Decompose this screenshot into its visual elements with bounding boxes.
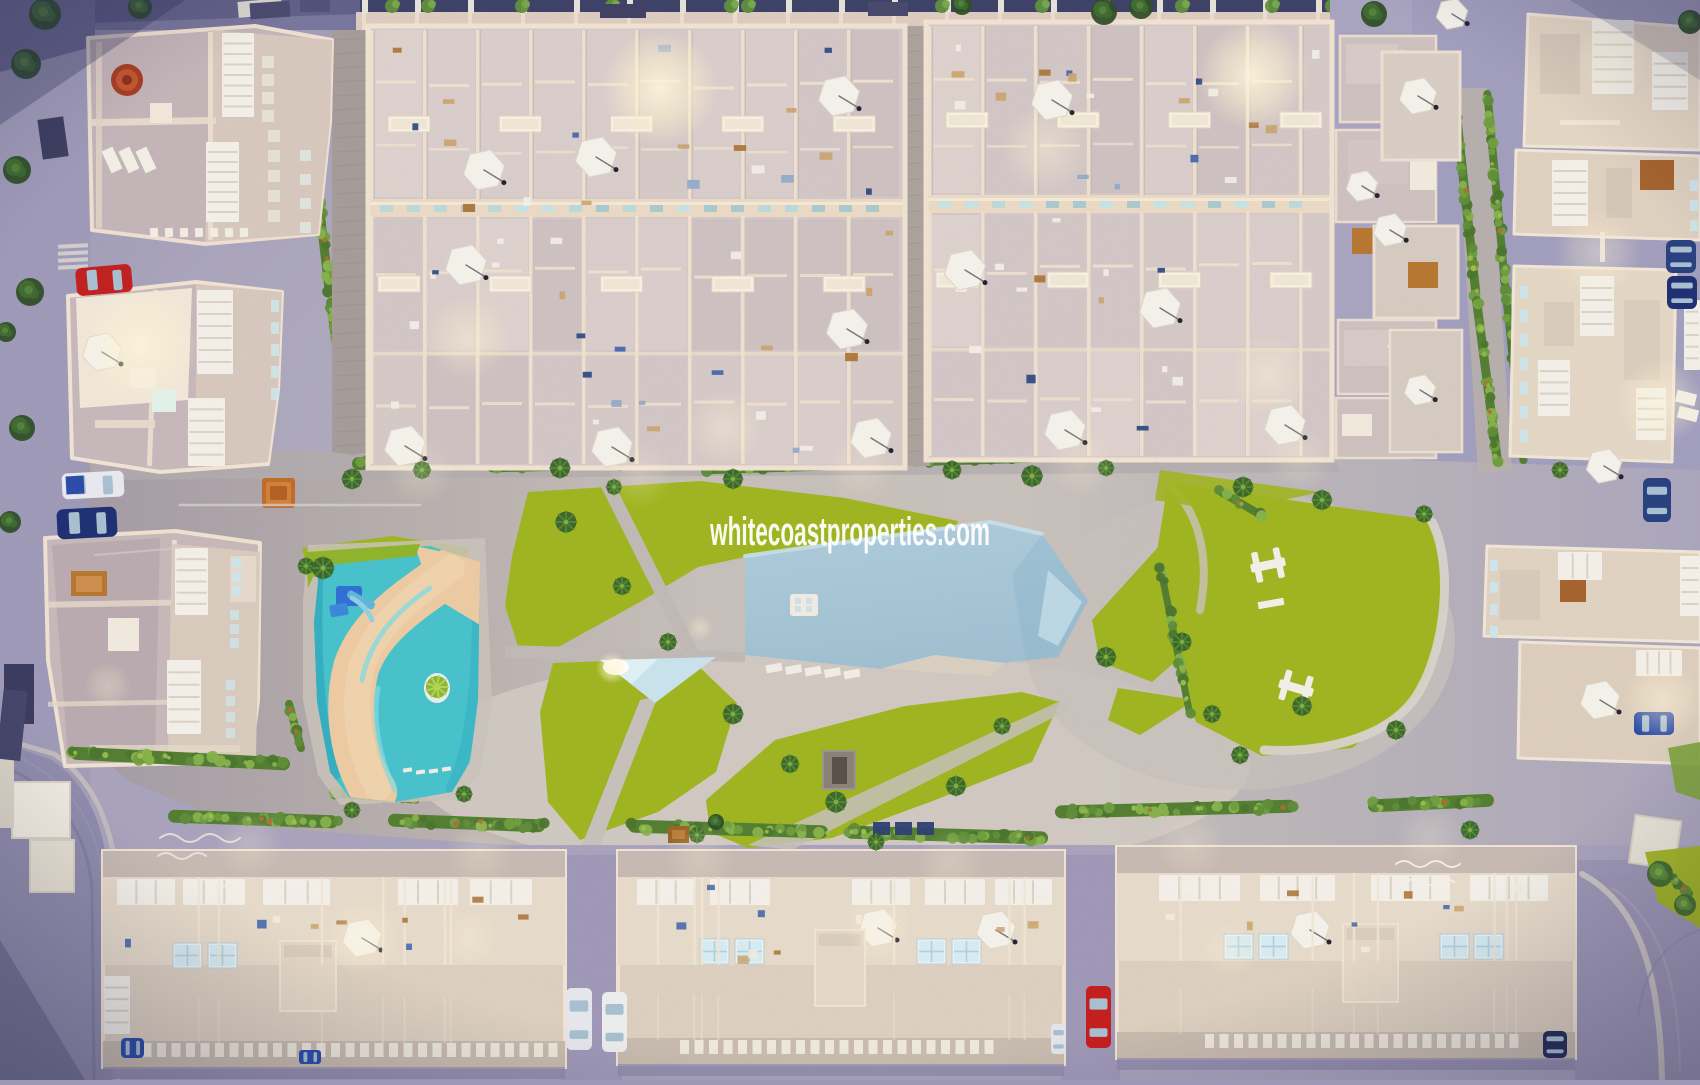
svg-text:whitecoastproperties.com: whitecoastproperties.com — [709, 509, 990, 553]
